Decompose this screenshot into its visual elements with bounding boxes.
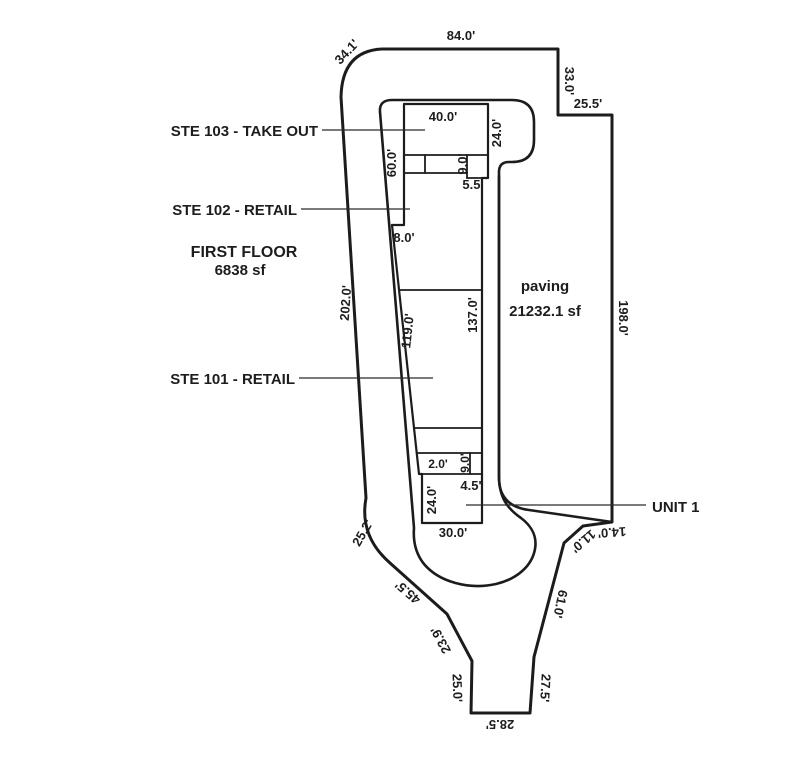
ste102-label: STE 102 - RETAIL: [172, 202, 297, 219]
dim-33-0: 33.0': [562, 67, 577, 95]
unit1-label: UNIT 1: [652, 499, 700, 516]
dim-8-0: 8.0': [393, 230, 414, 245]
dim-2-0: 2.0': [428, 457, 448, 471]
first-floor-label: FIRST FLOOR: [191, 244, 298, 261]
first-floor-area-label: 6838 sf: [215, 262, 267, 279]
dim-40-0: 40.0': [429, 109, 457, 124]
paving-area-label: 21232.1 sf: [509, 303, 582, 320]
ste101-label: STE 101 - RETAIL: [170, 371, 295, 388]
dim-4-5: 4.5': [460, 478, 481, 493]
dim-27-5: 27.5': [537, 673, 553, 702]
dim-25-0: 25.0': [450, 674, 466, 703]
dim-28-5: 28.5': [486, 717, 514, 732]
site-plan-drawing: STE 103 - TAKE OUT STE 102 - RETAIL STE …: [0, 0, 788, 768]
dim-23-9: 23.9': [427, 624, 454, 656]
dim-11-0: 11.0': [568, 527, 599, 556]
parcel-outline: [341, 49, 612, 713]
dim-25-5: 25.5': [574, 96, 602, 111]
dim-202-0: 202.0': [337, 285, 354, 322]
dim-198-0: 198.0': [616, 300, 631, 336]
dim-30-0: 30.0': [439, 525, 467, 540]
dim-9-0-corridor: 9.0': [455, 153, 470, 174]
dim-14-0: 14.0': [597, 524, 626, 541]
dim-84-0: 84.0': [447, 28, 475, 43]
dim-61-0: 61.0': [550, 589, 571, 620]
dim-45-5: 45.5': [392, 577, 423, 607]
dim-5-5: 5.5': [462, 177, 483, 192]
dim-60-0: 60.0': [384, 149, 399, 177]
paving-boundary: [499, 176, 612, 522]
dim-24-0-unit1: 24.0': [424, 486, 439, 514]
dim-119-0: 119.0': [398, 313, 417, 349]
dim-34-1: 34.1': [331, 36, 361, 67]
dim-24-0-ste103: 24.0': [489, 119, 504, 147]
paving-label: paving: [521, 278, 569, 295]
site-plan-page: STE 103 - TAKE OUT STE 102 - RETAIL STE …: [0, 0, 788, 768]
dim-137-0: 137.0': [465, 297, 480, 333]
ste103-label: STE 103 - TAKE OUT: [171, 123, 318, 140]
dim-9-0-row: 9.0': [458, 453, 472, 473]
